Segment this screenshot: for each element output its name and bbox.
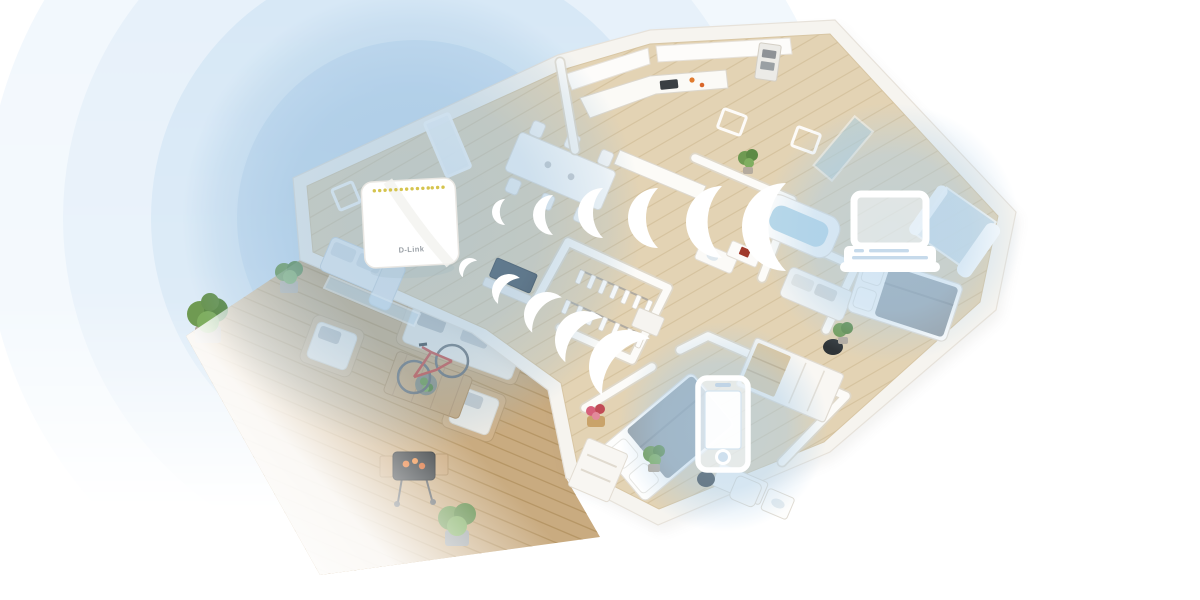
smartphone-icon (698, 378, 748, 470)
cooking-pot (689, 77, 694, 82)
cooktop (660, 79, 679, 90)
scene-container: D-Link (0, 0, 1200, 600)
router-brand-label: D-Link (398, 244, 425, 254)
laptop-base (840, 262, 940, 272)
cooking-pot (700, 83, 705, 88)
phone-speaker (715, 383, 731, 387)
phone-screen (705, 391, 741, 449)
wifi-coverage-floorplan: D-Link (0, 0, 1200, 600)
router-device: D-Link (361, 178, 460, 281)
laptop-screen (854, 194, 926, 246)
phone-home-button (717, 451, 730, 464)
laptop-icon (840, 194, 940, 272)
oven-tower (755, 43, 782, 82)
